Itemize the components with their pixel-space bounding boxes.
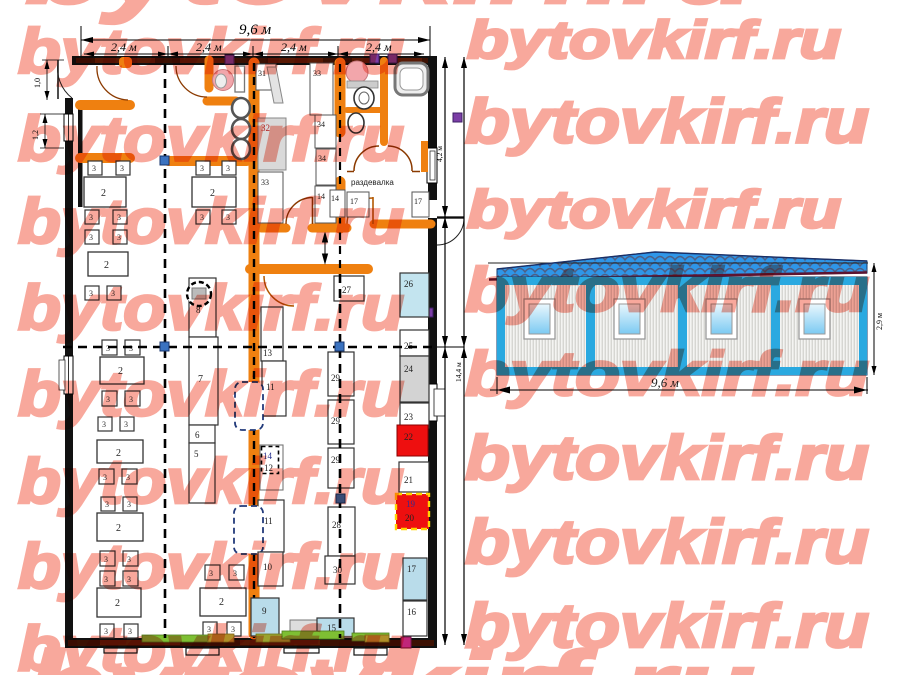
- svg-text:bytovkirf.ru: bytovkirf.ru: [465, 592, 869, 661]
- svg-text:bytovkirf.ru: bytovkirf.ru: [18, 447, 404, 517]
- svg-text:bytovkirf.ru: bytovkirf.ru: [465, 340, 869, 409]
- svg-text:bytovkirf.ru: bytovkirf.ru: [467, 11, 841, 70]
- svg-text:bytovkirf.ru: bytovkirf.ru: [18, 274, 404, 344]
- svg-text:bytovkirf.ru: bytovkirf.ru: [18, 360, 404, 430]
- svg-text:bytovkirf.ru: bytovkirf.ru: [18, 17, 404, 87]
- svg-text:bytovkirf.ru: bytovkirf.ru: [465, 424, 869, 493]
- svg-text:bytovkirf.ru: bytovkirf.ru: [465, 508, 869, 577]
- svg-text:bytovkirf.ru: bytovkirf.ru: [18, 187, 404, 257]
- svg-text:bytovkirf.ru: bytovkirf.ru: [18, 532, 404, 602]
- svg-text:bytovkirf.ru: bytovkirf.ru: [18, 105, 404, 175]
- svg-text:bytovkirf.ru: bytovkirf.ru: [465, 256, 869, 325]
- svg-text:bytovkirf.ru: bytovkirf.ru: [465, 88, 869, 157]
- svg-text:bytovkirf.ru: bytovkirf.ru: [467, 181, 841, 240]
